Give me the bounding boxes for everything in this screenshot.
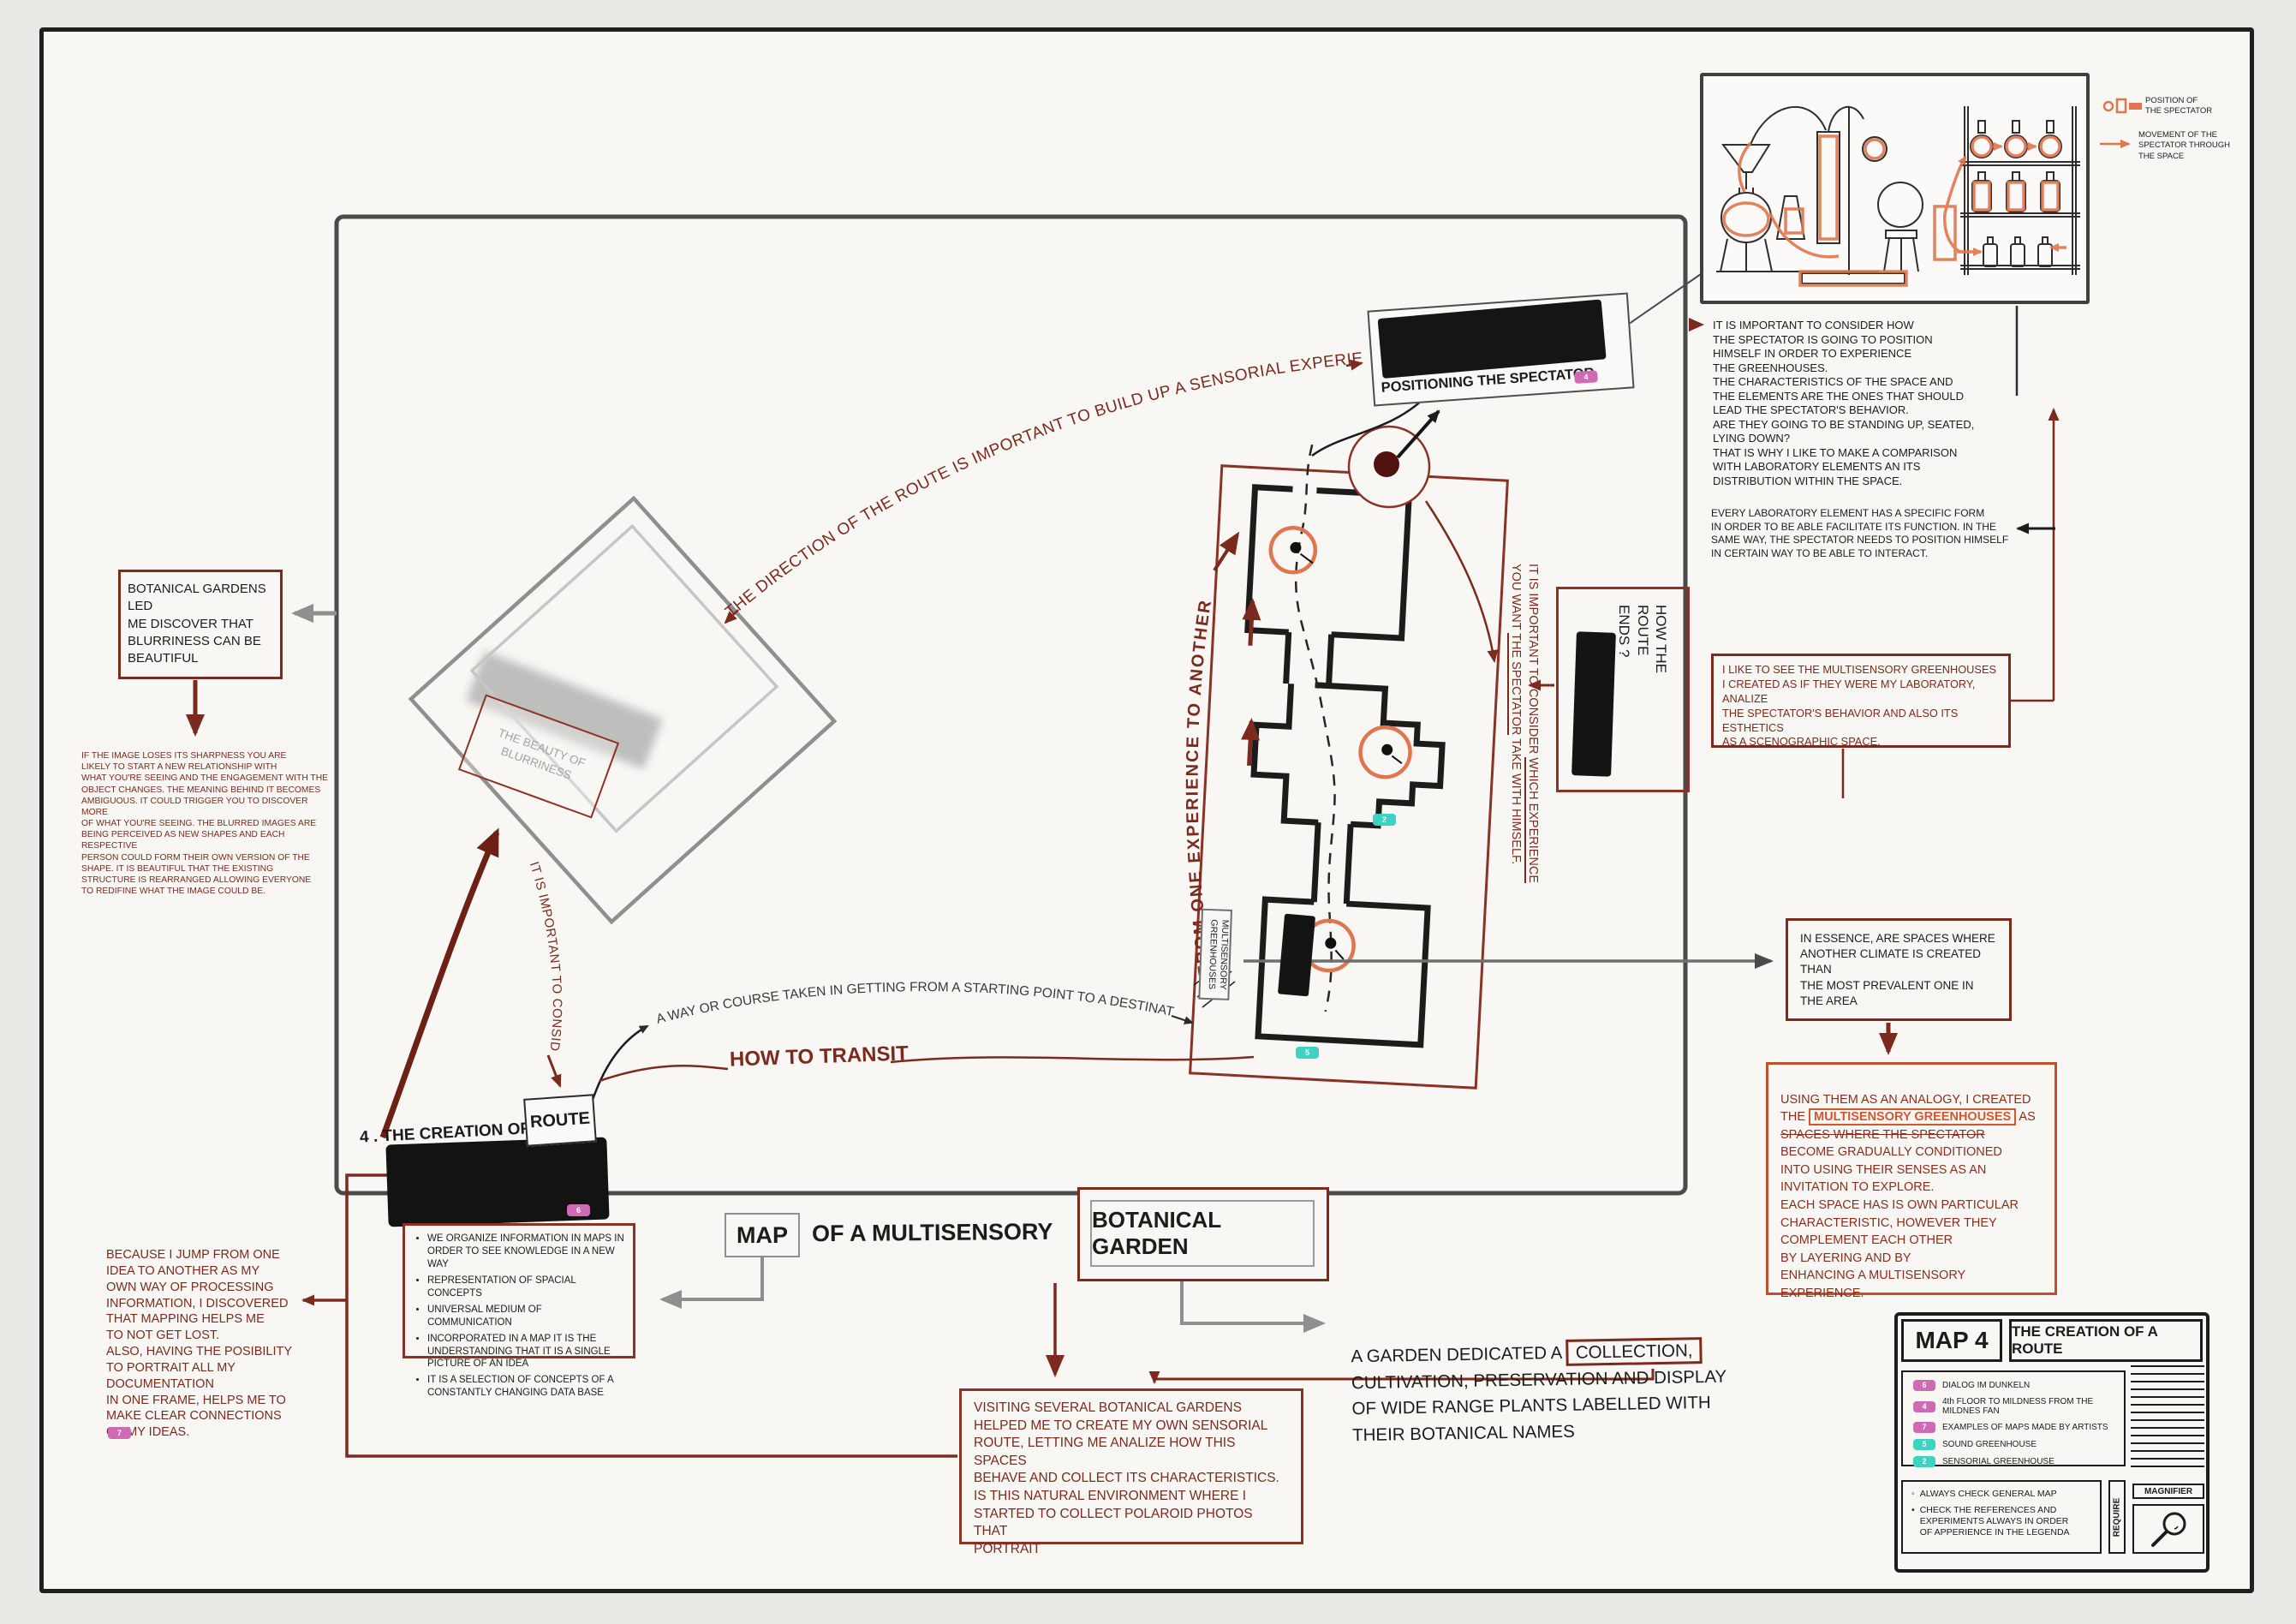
legend-label: 4th FLOOR TO MILDNESS FROM THE MILDNES F… [1942,1397,2117,1416]
positioning-spectator-box: POSITIONING THE SPECTATOR 4 [1367,292,1634,406]
panel-magnifier-icon-box [2132,1504,2204,1554]
note-every-element: EVERY LABORATORY ELEMENT HAS A SPECIFIC … [1711,507,2024,560]
panel-title: THE CREATION OF A ROUTE [2012,1323,2200,1358]
map-note-item: IT IS A SELECTION OF CONCEPTS OF A CONST… [427,1374,624,1400]
title-of-a-multisensory: OF A MULTISENSORY [812,1219,1053,1247]
route-ends-redaction-bar [1571,631,1616,777]
legend-panel: MAP 4 THE CREATION OF A ROUTE 6DIALOG IM… [1894,1312,2210,1573]
lab-legend-position-label: POSITION OF THE SPECTATOR [2145,96,2265,117]
which-exp-l2b: THE SPECTATOR [1507,633,1523,735]
using-strikethrough: SPACES WHERE THE SPECTATOR [1780,1128,1985,1142]
sensorial-greenhouse-badge: 2 [1373,814,1396,826]
panel-magnifier-label: MAGNIFIER [2144,1487,2192,1496]
legend-badge: 6 [1913,1380,1935,1391]
sketch-map-page: THE DIRECTION OF THE ROUTE IS IMPORTANT … [0,0,2296,1624]
using-mid: AS [2016,1110,2036,1124]
title-botanical-garden-inner-box: BOTANICAL GARDEN [1090,1200,1315,1267]
map-note-item: REPRESENTATION OF SPACIAL CONCEPTS [427,1275,624,1300]
panel-require-box: REQUIRE [2108,1480,2126,1554]
panel-notes-box: ◦ALWAYS CHECK GENERAL MAP •CHECK THE REF… [1901,1480,2102,1554]
route-word: ROUTE [529,1108,590,1132]
garden-def-collection-boxed: COLLECTION, [1566,1337,1703,1366]
positioning-ref-badge: 4 [1574,370,1598,384]
route-ref-badge: 6 [567,1204,590,1216]
because-ref-badge: 7 [108,1427,131,1439]
panel-require-label: REQUIRE [2113,1497,2122,1537]
garden-def-pre: A GARDEN DEDICATED A [1351,1343,1566,1366]
laboratory-sketch [1703,76,2086,301]
map-notes-box: WE ORGANIZE INFORMATION IN MAPS IN ORDER… [403,1223,635,1358]
using-post: BECOME GRADUALLY CONDITIONED INTO USING … [1780,1145,2019,1300]
which-exp-l1a: IT IS IMPORTANT TO CONSIDER [1526,564,1540,757]
which-exp-l1b: WHICH EXPERIENCE [1524,757,1540,883]
route-ends-label: HOW THE ROUTE ENDS ? [1615,605,1670,776]
panel-title-box: THE CREATION OF A ROUTE [2009,1319,2203,1362]
which-exp-l2a: YOU WANT [1509,564,1523,633]
multisensory-greenhouses-label: MULTISENSORY GREENHOUSES [1198,909,1232,1000]
legend-item: 2SENSORIAL GREENHOUSE [1913,1456,2117,1467]
panel-legend-box: 6DIALOG IM DUNKELN 44th FLOOR TO MILDNES… [1901,1370,2126,1466]
title-botanical-garden: BOTANICAL GARDEN [1092,1207,1313,1260]
legend-item: 6DIALOG IM DUNKELN [1913,1380,2117,1391]
legend-label: SENSORIAL GREENHOUSE [1942,1457,2054,1466]
sound-greenhouse-badge: 5 [1296,1047,1319,1059]
note-consider-position: IT IS IMPORTANT TO CONSIDER HOW THE SPEC… [1713,319,2008,488]
title-map-word: MAP [737,1222,788,1249]
panel-map-number: MAP 4 [1915,1327,1988,1354]
legend-label: EXAMPLES OF MAPS MADE BY ARTISTS [1942,1423,2108,1432]
garden-definition: A GARDEN DEDICATED A COLLECTION, CULTIVA… [1351,1311,1773,1449]
map-note-item: UNIVERSAL MEDIUM OF COMMUNICATION [427,1304,624,1329]
note-which-experience: IT IS IMPORTANT TO CONSIDER WHICH EXPERI… [1506,564,1542,949]
legend-badge: 2 [1913,1456,1935,1467]
map-note-item: WE ORGANIZE INFORMATION IN MAPS IN ORDER… [427,1233,624,1271]
magnifier-icon [2146,1509,2191,1549]
note-bullet-icon: ◦ [1911,1489,1915,1500]
legend-badge: 7 [1913,1422,1935,1433]
legend-item: 7EXAMPLES OF MAPS MADE BY ARTISTS [1913,1422,2117,1433]
note-in-essence-box: IN ESSENCE, ARE SPACES WHERE ANOTHER CLI… [1786,918,2012,1021]
legend-item: 5SOUND GREENHOUSE [1913,1439,2117,1450]
title-botanical-garden-outer-box: BOTANICAL GARDEN [1077,1187,1329,1281]
legend-badge: 5 [1913,1439,1935,1450]
lab-legend-movement-label: MOVEMENT OF THE SPECTATOR THROUGH THE SP… [2138,130,2267,162]
note-using-analogy-box: USING THEM AS AN ANALOGY, I CREATED THE … [1766,1062,2057,1295]
panel-magnifier-label-box: MAGNIFIER [2132,1484,2204,1499]
legend-item: 44th FLOOR TO MILDNESS FROM THE MILDNES … [1913,1397,2117,1416]
map-note-item: INCORPORATED IN A MAP IT IS THE UNDERSTA… [427,1333,624,1371]
note-because-jump: BECAUSE I JUMP FROM ONE IDEA TO ANOTHER … [106,1247,337,1441]
route-word-box: ROUTE [523,1094,597,1147]
note-if-image: IF THE IMAGE LOSES ITS SHARPNESS YOU ARE… [81,750,330,897]
which-exp-l2c: TAKE WITH HIMSELF. [1509,735,1523,864]
multisensory-greenhouses-highlight: MULTISENSORY GREENHOUSES [1809,1108,2016,1125]
legend-label: DIALOG IM DUNKELN [1942,1381,2030,1390]
panel-hatch-area [2131,1365,2204,1472]
note-bullet-icon: • [1911,1505,1915,1538]
title-map-box: MAP [725,1213,800,1257]
panel-note-2: CHECK THE REFERENCES AND EXPERIMENTS ALW… [1920,1505,2070,1538]
visiting-gardens-box: VISITING SEVERAL BOTANICAL GARDENS HELPE… [959,1388,1303,1544]
legend-label: SOUND GREENHOUSE [1942,1440,2037,1449]
note-like-to-see-box: I LIKE TO SEE THE MULTISENSORY GREENHOUS… [1711,654,2011,748]
panel-map-number-box: MAP 4 [1901,1319,2002,1362]
laboratory-sketch-box [1700,73,2090,304]
panel-note-1: ALWAYS CHECK GENERAL MAP [1920,1489,2057,1500]
botanical-led-box: BOTANICAL GARDENS LED ME DISCOVER THAT B… [118,570,283,679]
legend-badge: 4 [1913,1401,1935,1412]
